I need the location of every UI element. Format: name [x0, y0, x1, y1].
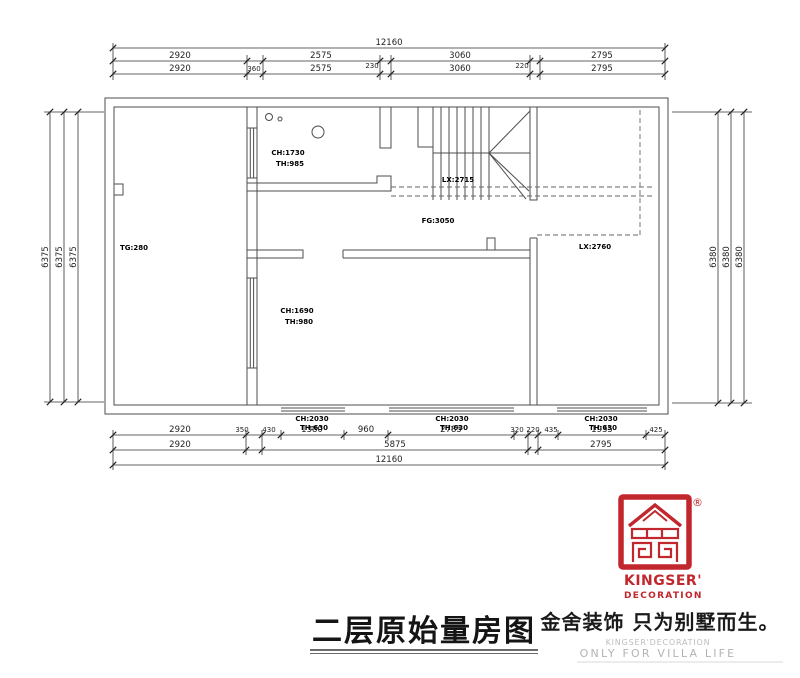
dim-bot-total: 12160	[375, 455, 402, 465]
mid-wall-door-stub	[487, 238, 495, 250]
plumbing-point-small-1	[266, 114, 273, 121]
mid-wall-left-segment	[247, 250, 303, 258]
left-room-partition-wall	[247, 107, 257, 405]
dim-bot-r1-7: 220	[526, 426, 539, 434]
dim-top-r2-1: 2575	[310, 51, 332, 61]
dim-bot-r2-2: 2795	[590, 440, 612, 450]
window-label-2-ch: CH:2030	[584, 415, 617, 423]
bottom-window-hatches	[281, 408, 647, 411]
room-label-top-th: TH:985	[276, 160, 304, 168]
top-room-bottom-wall	[247, 176, 391, 191]
dim-bot-r1-8: 435	[544, 426, 557, 434]
inner-wall	[114, 107, 659, 405]
dim-top-small-0: 230	[365, 62, 378, 70]
right-room-left-wall	[530, 238, 537, 405]
dim-right-0: 6380	[709, 246, 719, 268]
dim-left-0: 6375	[41, 246, 51, 268]
dim-bot-r2-0: 2920	[169, 440, 191, 450]
stair-right-wall	[530, 107, 537, 200]
room-label-stair-lx: LX:2715	[442, 176, 474, 184]
room-label-void-lx: LX:2760	[579, 243, 611, 251]
dim-bot-r1-6: 320	[510, 426, 523, 434]
logo-lintel	[632, 529, 678, 538]
dim-top-r3-3: 3060	[449, 64, 471, 74]
dim-left-2: 6375	[69, 246, 79, 268]
dim-top-small-1: 220	[515, 62, 528, 70]
plumbing-point-small-2	[278, 117, 282, 121]
dim-top-r3-1: 360	[247, 65, 260, 73]
logo-wordmark: KINGSER'	[624, 573, 702, 589]
dim-top-r3-0: 2920	[169, 64, 191, 74]
dim-top-total: 12160	[375, 38, 402, 48]
dim-right-2: 6380	[735, 246, 745, 268]
room-label-mid-th: TH:980	[285, 318, 313, 326]
floor-plan-drawing: 12160 2920 2575 3060 2795 230 220 2920 3…	[0, 0, 800, 678]
left-wall-pilaster	[114, 184, 123, 195]
dim-bot-r2-1: 5875	[384, 440, 406, 450]
dim-bot-r1-0: 2920	[169, 425, 191, 435]
logo-lintel-dividers	[647, 529, 662, 538]
plumbing-point-large	[312, 126, 324, 138]
dim-bot-r1-10: 425	[649, 426, 662, 434]
drawing-sheet: 12160 2920 2575 3060 2795 230 220 2920 3…	[0, 0, 800, 678]
stair-left-stub	[418, 107, 433, 147]
brand-slogan: 金舍装饰 只为别墅而生。	[540, 610, 780, 634]
page-title: 二层原始量房图	[312, 614, 536, 649]
brand-slogan-en-small: KINGSER'DECORATION	[606, 638, 711, 647]
dim-bot-r1-1: 350	[235, 426, 248, 434]
dim-bot-r1-4: 960	[358, 425, 374, 435]
kingser-logo	[621, 497, 689, 567]
room-label-tg: TG:280	[120, 244, 148, 252]
logo-spiral-right	[659, 543, 677, 562]
dim-top-r3-4: 2795	[591, 64, 613, 74]
dim-left-1: 6375	[55, 246, 65, 268]
window-label-2-th: TH:630	[589, 424, 617, 432]
room-label-top-ch: CH:1730	[271, 149, 304, 157]
dim-top-r3-2: 2575	[310, 64, 332, 74]
dim-top-lines	[113, 48, 665, 74]
logo-roof	[629, 505, 681, 526]
window-label-0-th: TH:630	[300, 424, 328, 432]
registered-mark: ®	[692, 496, 703, 509]
brand-slogan-en: ONLY FOR VILLA LIFE	[580, 647, 737, 660]
window-label-1-ch: CH:2030	[435, 415, 468, 423]
partition-window-hatch	[247, 128, 257, 368]
logo-spiral-left	[633, 543, 651, 562]
room-label-mid-ch: CH:1690	[280, 307, 313, 315]
logo-wordmark-sub: DECORATION	[624, 591, 703, 601]
dim-top-r2-2: 3060	[449, 51, 471, 61]
dim-top-r2-0: 2920	[169, 51, 191, 61]
mid-wall-right-segment	[343, 250, 530, 258]
plan-walls	[105, 98, 668, 414]
dim-top-r2-3: 2795	[591, 51, 613, 61]
dim-right-1: 6380	[722, 246, 732, 268]
outer-wall	[105, 98, 668, 414]
dim-bot-r1-2: 430	[262, 426, 275, 434]
dim-top-witness	[113, 43, 665, 80]
top-room-right-stub	[380, 107, 391, 148]
window-label-1-th: TH:630	[440, 424, 468, 432]
window-label-0-ch: CH:2030	[295, 415, 328, 423]
room-label-hall-fg: FG:3050	[422, 217, 455, 225]
